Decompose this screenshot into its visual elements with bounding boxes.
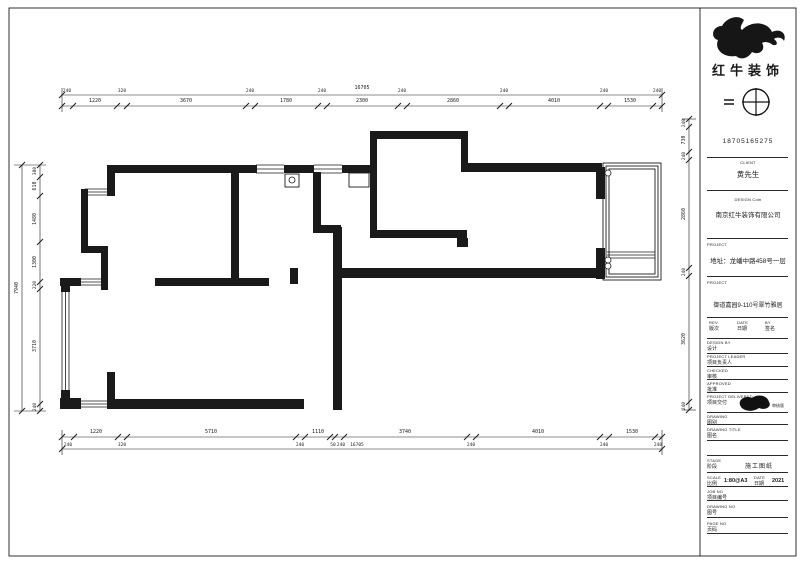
bull-logo-icon <box>706 12 792 62</box>
dim-label: 1480 <box>32 213 38 225</box>
sig-row-label-cn: 设计 <box>707 346 731 352</box>
door-circle <box>605 263 611 269</box>
phone-number: 18705165275 <box>700 138 796 145</box>
dim-label: 3740 <box>399 429 411 435</box>
stage-value: 施工图纸 <box>730 461 788 470</box>
rule-divider <box>707 190 788 191</box>
wall <box>60 398 81 409</box>
rev-col-2: BY签名 <box>765 320 775 332</box>
wall <box>370 163 377 233</box>
dim-label: 4010 <box>548 98 560 104</box>
scale-label-en: SCALE <box>707 475 721 480</box>
dim-label: 240 <box>467 442 475 448</box>
wall <box>284 165 314 173</box>
dim-label: 240 <box>600 442 608 448</box>
door-circle <box>289 177 295 183</box>
rev-col-1: DATE日期 <box>737 320 748 332</box>
rule-divider <box>707 486 788 487</box>
outline-rect <box>349 173 369 187</box>
dim-label: 240 <box>337 442 345 448</box>
client-name: 黄先生 <box>700 169 796 180</box>
dim-label: 240 <box>63 88 71 94</box>
dim-label: 220 <box>32 281 38 289</box>
drawing-no-field: DRAWING NO 图号 <box>707 504 735 516</box>
dim-label: 240 <box>318 88 326 94</box>
door-circle <box>605 170 611 176</box>
rule-divider <box>707 276 788 277</box>
rule-divider <box>707 379 788 380</box>
rule-divider <box>707 533 788 534</box>
sig-row-label-en: DESIGN BY <box>707 340 731 345</box>
wall <box>596 167 605 199</box>
project-name: 御道嘉园9-110号翠竹雅居 <box>700 300 796 309</box>
dim-label: 1530 <box>624 98 636 104</box>
floor-plan-canvas: 1220367017802300286040101530240320240240… <box>0 0 800 564</box>
dim-label: 240 <box>64 442 72 448</box>
company-name: 南京红牛装饰有限公司 <box>700 209 796 219</box>
wall <box>313 172 321 228</box>
wall <box>107 399 304 409</box>
dim-label: 3620 <box>681 333 687 345</box>
wall <box>290 268 298 284</box>
drawing-title-label-en: DRAWING TITLE <box>707 427 741 432</box>
wall <box>370 230 467 238</box>
dim-label: 240 <box>398 88 406 94</box>
rule-divider <box>707 455 788 456</box>
sig-row-label-en: PROJECT LEADER <box>707 354 746 359</box>
wall <box>155 278 269 286</box>
dim-label: 240 <box>653 88 661 94</box>
dim-label: 1300 <box>32 256 38 268</box>
dim-label: 240 <box>681 119 687 127</box>
drawing-label-cn: 图别 <box>707 420 728 426</box>
stage-field: STAGE 阶段 <box>707 458 721 470</box>
date-value: 2021 <box>772 478 784 484</box>
rule-divider <box>707 424 788 425</box>
dim-label: 240 <box>32 403 38 411</box>
dim-label: 240 <box>296 442 304 448</box>
north-compass-icon <box>722 84 774 120</box>
drawing-sheet: 1220367017802300286040101530240320240240… <box>0 0 800 564</box>
drawing-label-en: DRAWING <box>707 414 728 419</box>
company-label: DESIGN Com <box>700 197 796 202</box>
wall <box>461 139 468 165</box>
rev-col-en: BY <box>765 320 775 325</box>
rev-col-cn: 签名 <box>765 326 775 332</box>
dim-label: 240 <box>500 88 508 94</box>
dim-label: 16705 <box>350 442 364 448</box>
door-circle <box>605 257 611 263</box>
sig-row-0: DESIGN BY设计 <box>707 340 731 352</box>
rule-divider <box>707 353 788 354</box>
stage-label-cn: 阶段 <box>707 464 721 470</box>
dim-label: 380 <box>32 167 38 175</box>
brand-name: 红牛装饰 <box>700 60 796 79</box>
rev-col-cn: 日期 <box>737 326 748 332</box>
project-label-2: PROJECT <box>707 280 727 285</box>
drawing-no-label-en: DRAWING NO <box>707 504 735 509</box>
rule-divider <box>707 500 788 501</box>
wall <box>461 163 602 172</box>
dim-label: 1530 <box>626 429 638 435</box>
dim-label: 1780 <box>280 98 292 104</box>
rev-col-en: DATE <box>737 320 748 325</box>
rule-divider <box>707 517 788 518</box>
dim-label: 2300 <box>356 98 368 104</box>
dim-label: 4010 <box>532 429 544 435</box>
drawing-no-label-cn: 图号 <box>707 510 735 516</box>
dim-label: 240 <box>654 442 662 448</box>
dim-label: 1220 <box>89 98 101 104</box>
wall <box>113 165 257 173</box>
sig-row-label-en: CHECKED <box>707 368 728 373</box>
client-label: CLIENT <box>700 160 796 165</box>
rev-col-en: REV. <box>709 320 719 325</box>
dim-label: 240 <box>681 402 687 410</box>
rule-divider <box>707 338 788 339</box>
rule-divider <box>707 412 788 413</box>
dim-label: 730 <box>681 135 687 144</box>
scale-value: 1:80@A3 <box>724 478 747 484</box>
dim-label: 240 <box>600 88 608 94</box>
outline-rect <box>606 166 658 277</box>
wall <box>370 139 377 165</box>
wall <box>101 246 108 290</box>
rule-divider <box>707 157 788 158</box>
rev-col-cn: 版次 <box>709 326 719 332</box>
dim-label: 320 <box>118 442 126 448</box>
sig-row-label-en: APPROVED <box>707 381 731 386</box>
dim-label: 1110 <box>312 429 324 435</box>
dim-label: 2860 <box>681 208 687 220</box>
project-address: 地址：龙蟠中路458号一层 <box>700 255 796 265</box>
wall <box>457 238 468 247</box>
dim-label: 240 <box>246 88 254 94</box>
outline-rect <box>603 163 661 280</box>
sig-row-1: PROJECT LEADER项目负责人 <box>707 354 746 366</box>
rule-divider <box>707 238 788 239</box>
rev-col-0: REV.版次 <box>709 320 719 332</box>
rule-divider <box>707 392 788 393</box>
approval-stamp-icon <box>738 393 772 413</box>
dim-label: 2860 <box>447 98 459 104</box>
project-label: PROJECT <box>707 242 727 247</box>
wall <box>342 165 372 173</box>
wall <box>107 165 115 196</box>
dim-label: 320 <box>118 88 126 94</box>
wall <box>341 268 603 278</box>
drawing-title-field: DRAWING TITLE 图名 <box>707 427 741 439</box>
dim-label: 240 <box>681 268 687 276</box>
drawing-title-label-cn: 图名 <box>707 433 741 439</box>
stamp-caption: 审核版 <box>772 403 784 409</box>
wall <box>231 172 239 284</box>
dim-label: 50 <box>330 442 336 448</box>
stage-label-en: STAGE <box>707 458 721 463</box>
dim-label: 16705 <box>354 85 369 91</box>
dim-label: 1220 <box>90 429 102 435</box>
dim-label: 240 <box>681 152 687 160</box>
rule-divider <box>707 366 788 367</box>
dim-label: 5710 <box>205 429 217 435</box>
page-no-field: PAGE NO 页码 <box>707 521 726 533</box>
page-no-label-en: PAGE NO <box>707 521 726 526</box>
wall <box>81 189 88 253</box>
dim-label: 610 <box>32 181 38 190</box>
wall <box>370 131 468 139</box>
dim-label: 3670 <box>180 98 192 104</box>
dim-label: 7940 <box>14 282 20 294</box>
date-label-en: DATE <box>754 475 765 480</box>
job-no-label-en: JOB NO <box>707 489 727 494</box>
dim-label: 3710 <box>32 340 38 352</box>
wall <box>333 227 342 410</box>
rule-divider <box>707 440 788 441</box>
rule-divider <box>707 472 788 473</box>
rule-divider <box>707 317 788 318</box>
